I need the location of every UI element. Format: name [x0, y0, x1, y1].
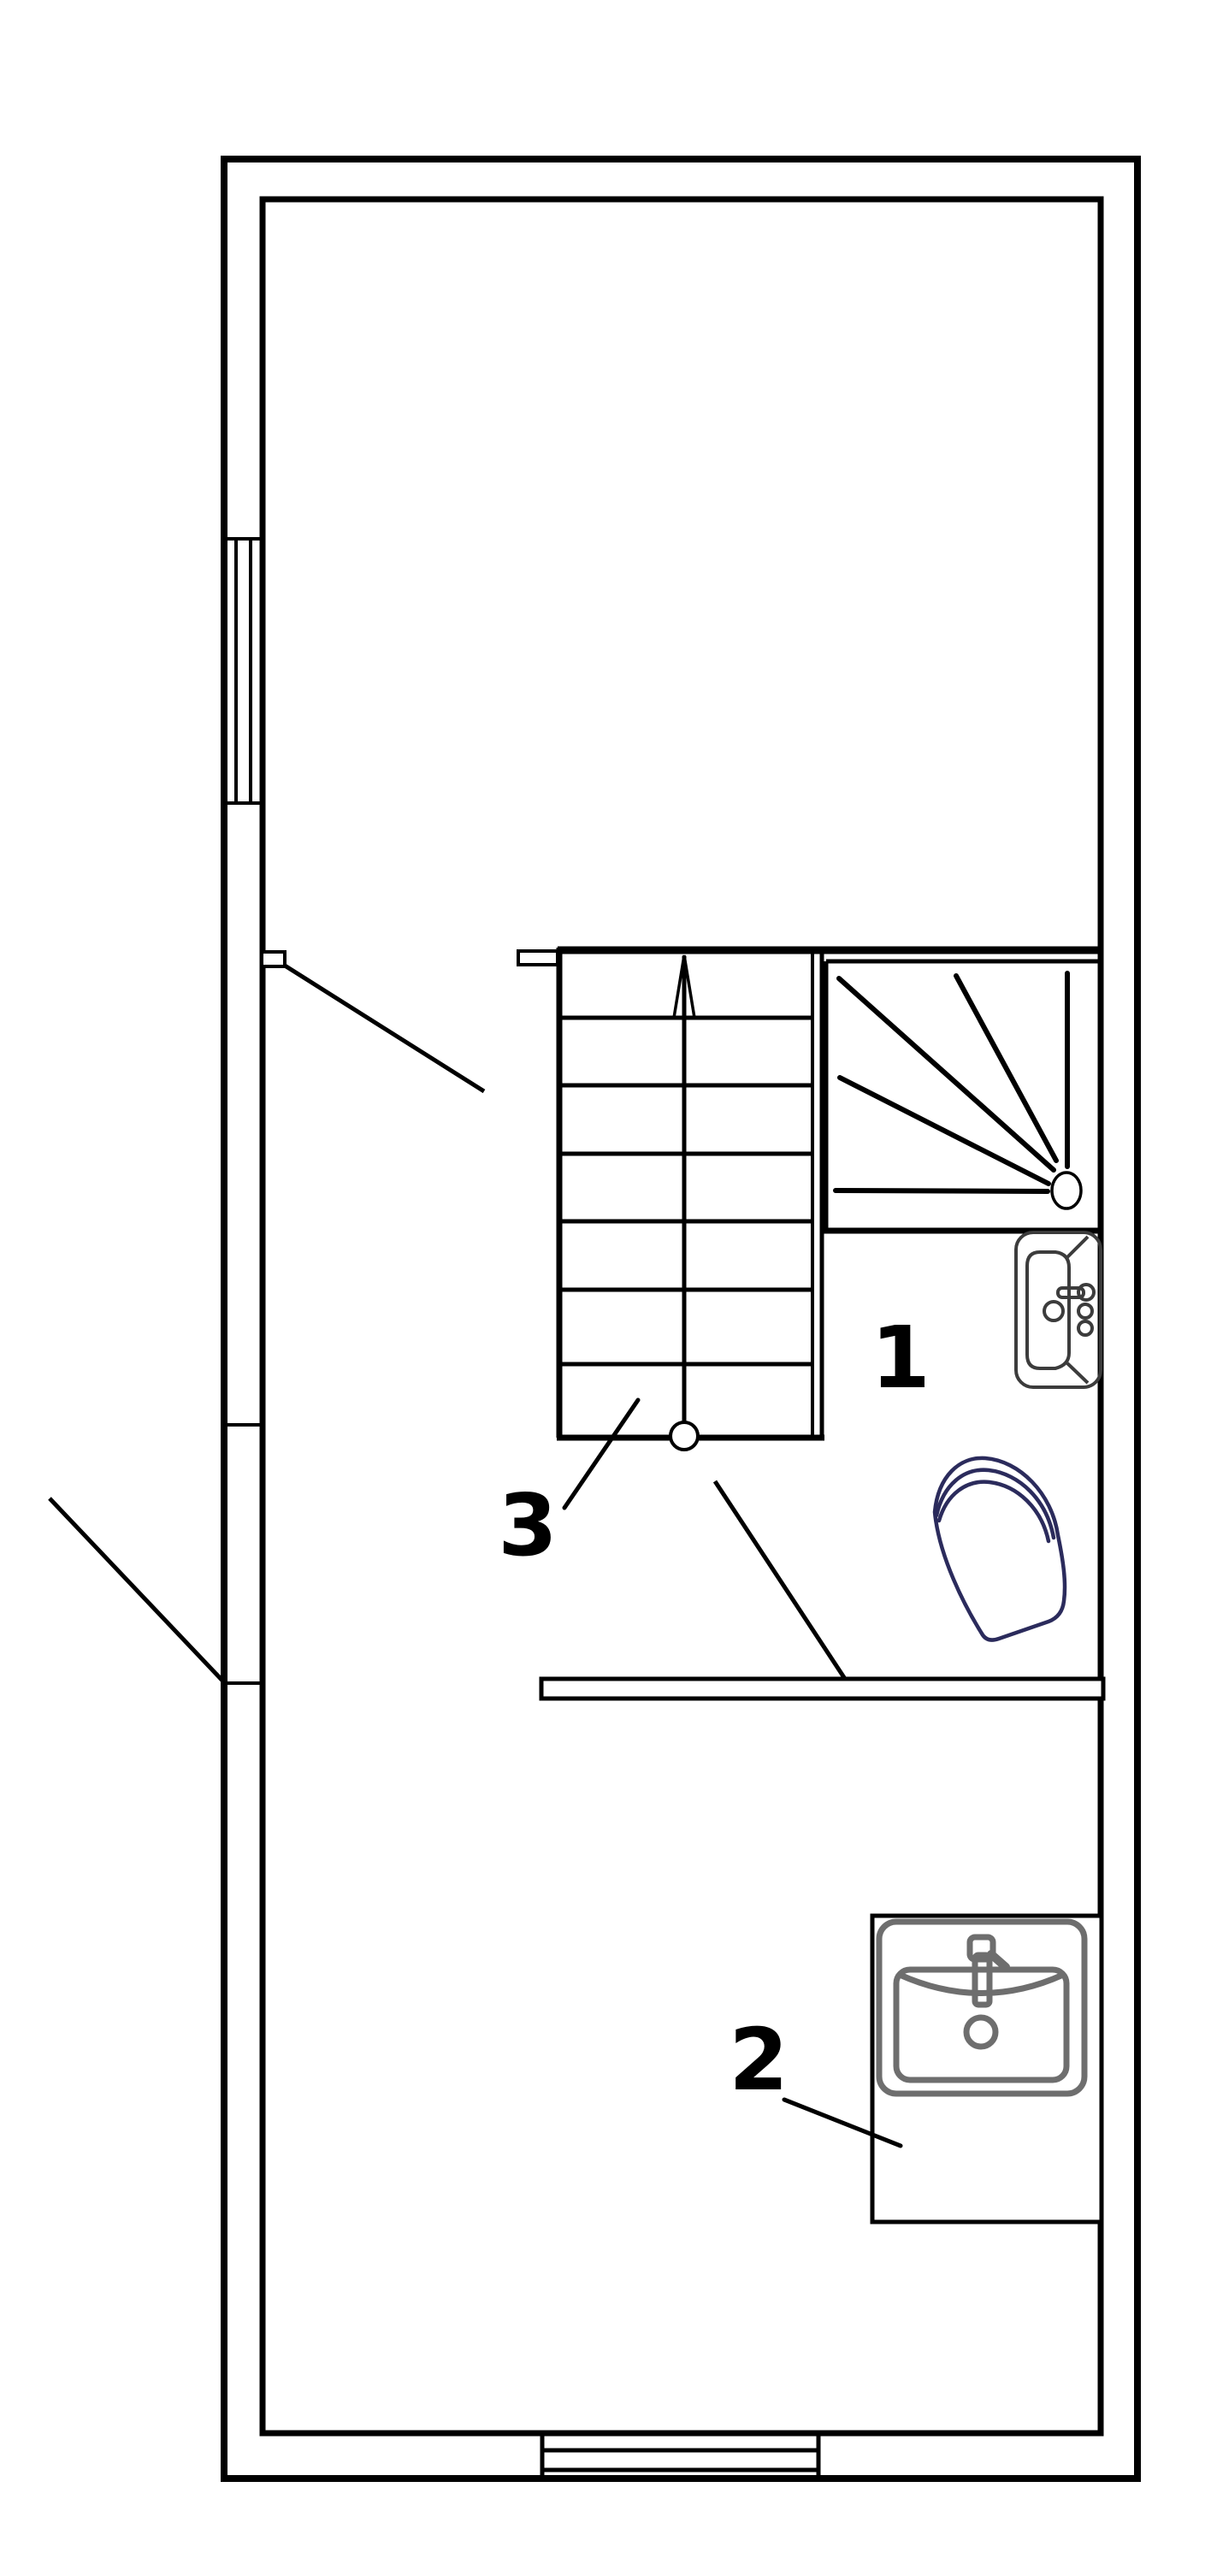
leader-line-stairs	[564, 1400, 638, 1508]
window-bottom	[542, 2434, 818, 2482]
bathroom-sink-icon	[1016, 1232, 1101, 1387]
staircase	[557, 948, 824, 1450]
shower-spray-lines	[836, 973, 1067, 1191]
room-label-stairs: 3	[498, 1475, 558, 1575]
shower-ray	[956, 976, 1056, 1161]
room-label-bathroom: 1	[871, 1308, 930, 1408]
sink1-deck-line	[1067, 1237, 1088, 1257]
upper-door-leaf	[285, 966, 484, 1091]
floor-plan-svg: 1 3 2	[0, 0, 1211, 2576]
sink1-drain-dot	[1044, 1302, 1063, 1320]
toilet-icon	[935, 1458, 1065, 1640]
room-label-laundry: 2	[729, 2010, 789, 2110]
entrance-door	[50, 1425, 265, 1683]
partition-stub-left	[262, 952, 285, 966]
partition-stub-right	[518, 951, 558, 965]
entrance-door-leaf	[50, 1498, 224, 1682]
bathroom-door-leaf	[715, 1481, 845, 1679]
upper-partition	[262, 951, 558, 1091]
shower-ray	[836, 1191, 1048, 1191]
shower-drain-icon	[1052, 1173, 1081, 1208]
shower-ray	[839, 978, 1054, 1170]
sink1-tap-dot	[1078, 1304, 1092, 1318]
stair-walkline-start-circle	[670, 1422, 698, 1450]
sink1-tap-dot	[1078, 1321, 1092, 1335]
floor-plan-page: 1 3 2	[0, 0, 1211, 2576]
shower	[822, 961, 1103, 1231]
sink1-faucet-knob	[1078, 1285, 1094, 1300]
lower-partition-band	[541, 1679, 1103, 1699]
sink1-deck-line	[1067, 1363, 1088, 1383]
